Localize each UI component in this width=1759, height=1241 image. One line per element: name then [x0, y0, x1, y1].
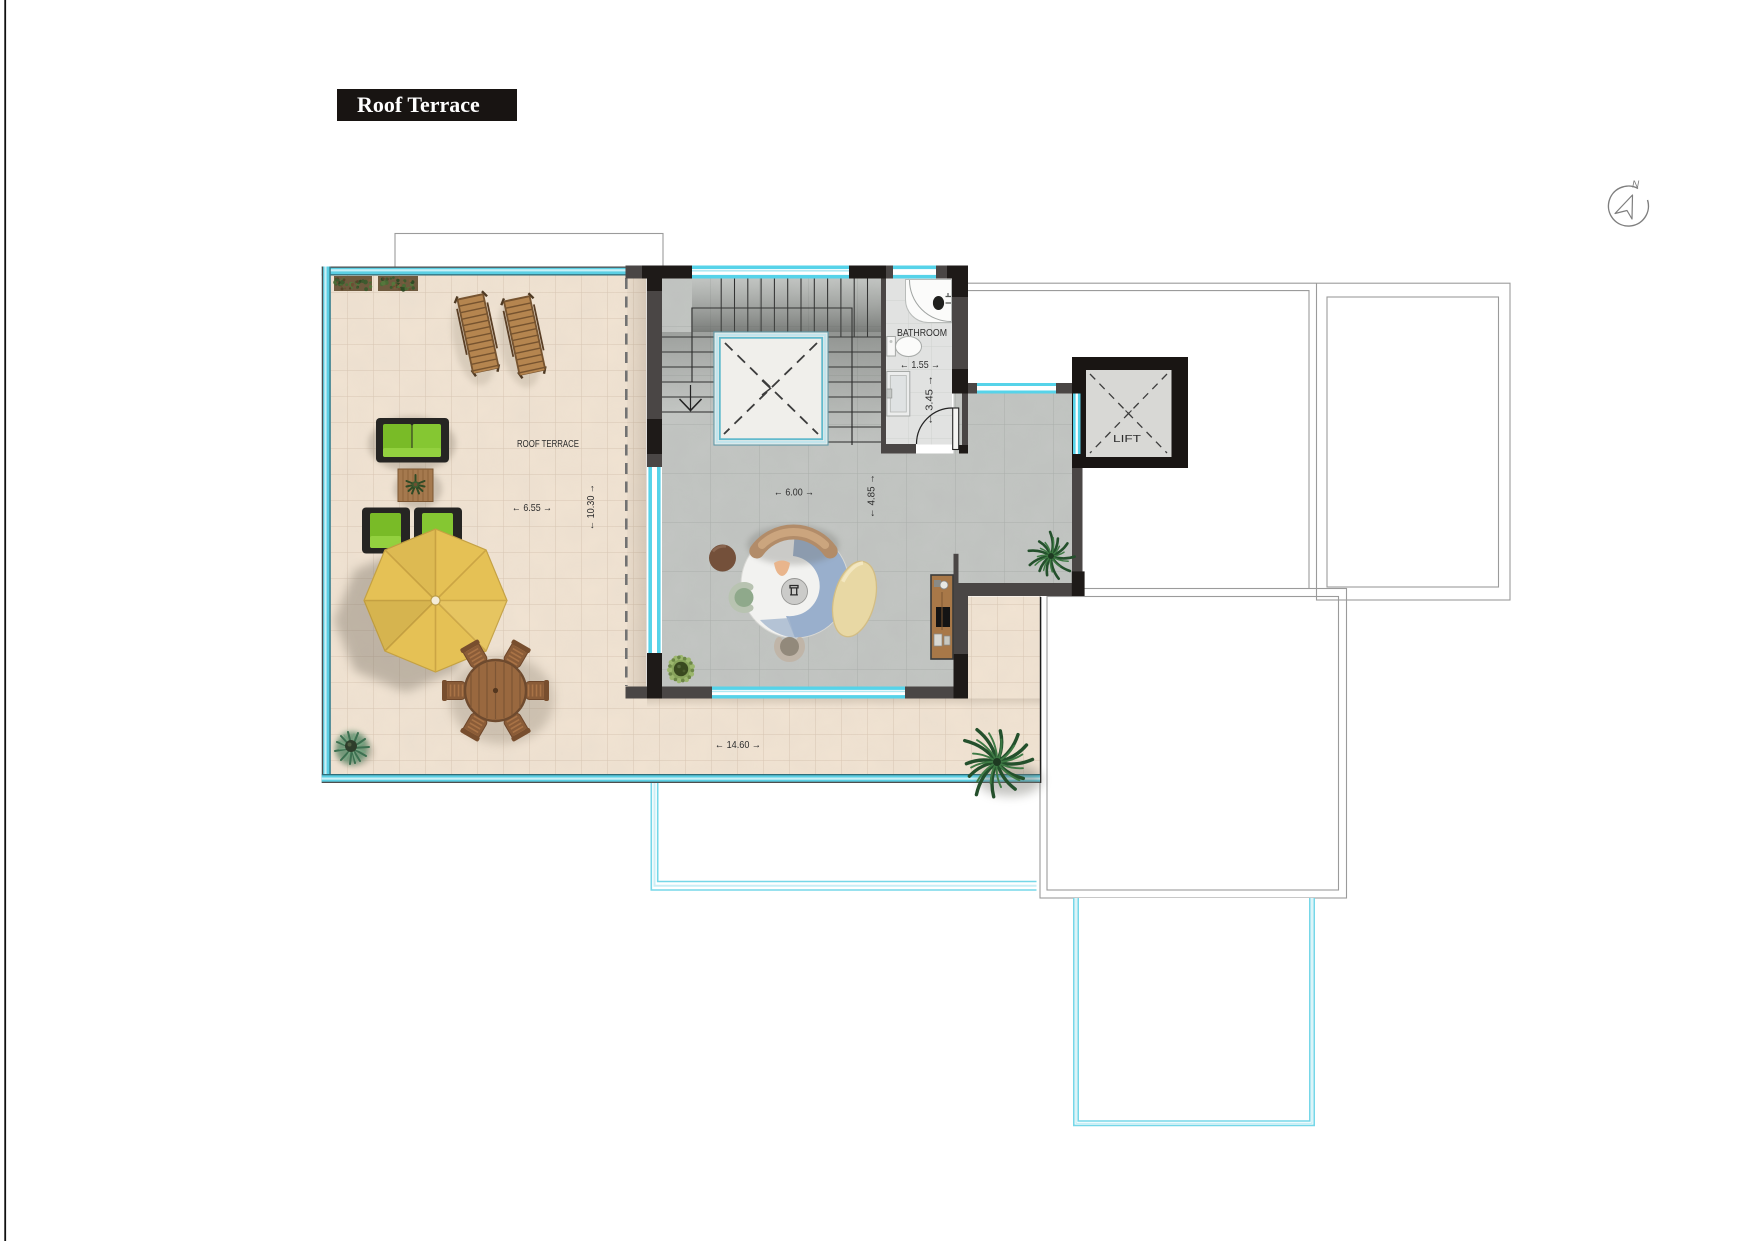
svg-text:Roof Terrace: Roof Terrace: [357, 92, 480, 117]
svg-text:← 10.30 →: ← 10.30 →: [585, 484, 597, 530]
svg-text:ROOF TERRACE: ROOF TERRACE: [517, 438, 579, 450]
svg-text:← 1.55 →: ← 1.55 →: [900, 359, 940, 371]
svg-text:← 6.00 →: ← 6.00 →: [774, 487, 814, 499]
svg-text:← 3.45 →: ← 3.45 →: [924, 375, 936, 425]
svg-text:BATHROOM: BATHROOM: [897, 327, 947, 339]
svg-text:← 14.60 →: ← 14.60 →: [715, 739, 761, 751]
svg-text:LIFT: LIFT: [1113, 433, 1142, 445]
svg-text:← 4.85 →: ← 4.85 →: [866, 474, 878, 518]
svg-text:N: N: [1632, 180, 1640, 191]
svg-text:← 6.55 →: ← 6.55 →: [512, 502, 552, 514]
